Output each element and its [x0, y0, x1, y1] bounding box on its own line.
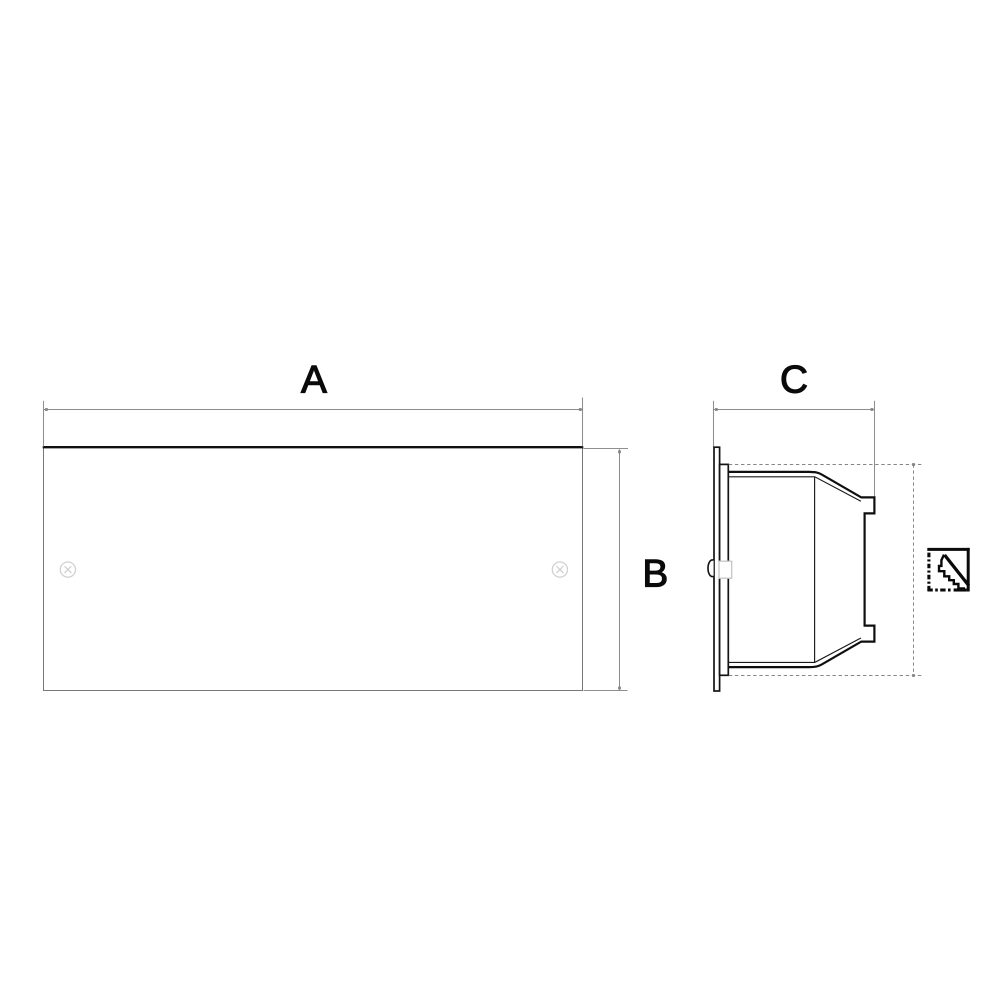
svg-text:A: A — [301, 358, 327, 401]
svg-text:C: C — [780, 358, 808, 401]
svg-text:B: B — [642, 552, 668, 595]
